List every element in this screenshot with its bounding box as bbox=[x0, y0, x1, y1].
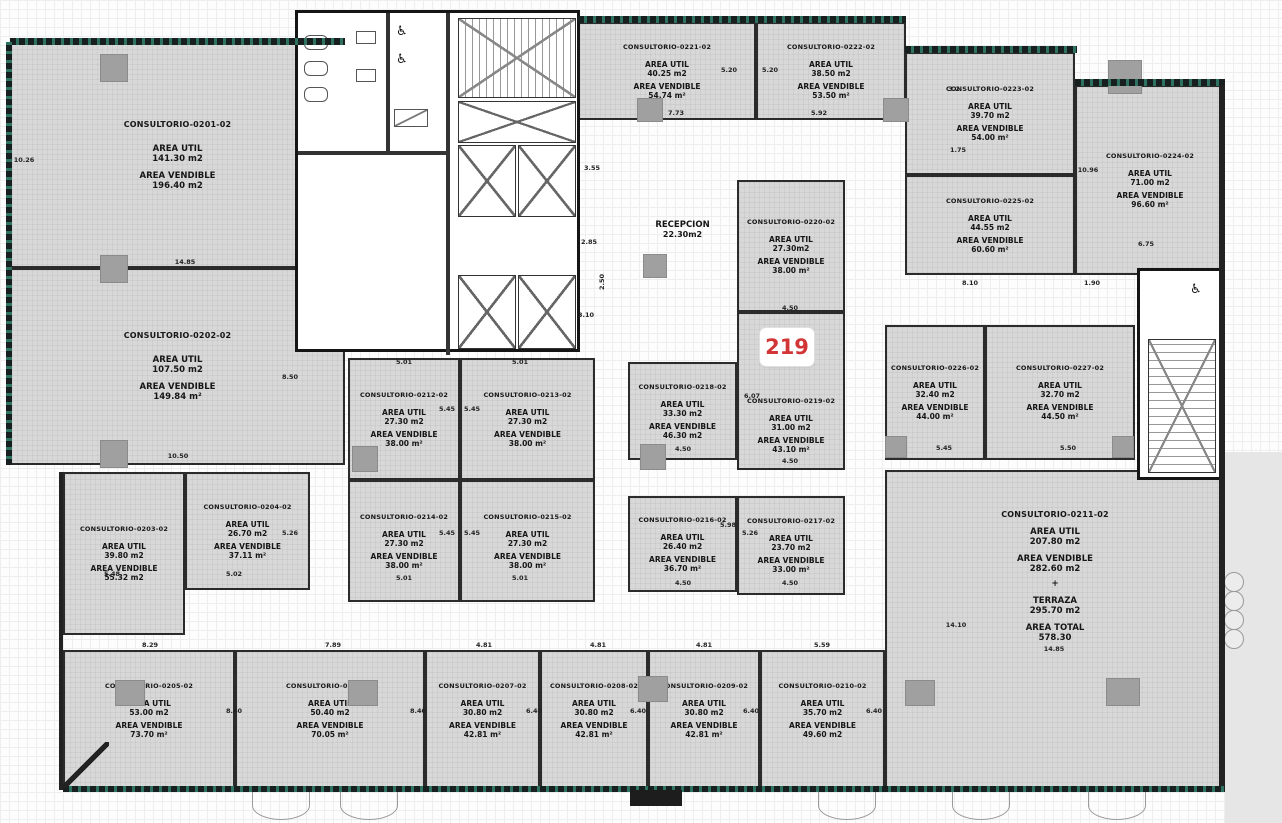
door-swing-arc bbox=[252, 791, 310, 820]
area-vendible-label: AREA VENDIBLE bbox=[371, 430, 438, 439]
area-util-label: AREA UTIL bbox=[1038, 381, 1082, 390]
core-wall bbox=[446, 13, 450, 355]
area-util-value: 26.70 m2 bbox=[228, 529, 267, 538]
dimension-label: 8.10 bbox=[962, 279, 978, 287]
area-vendible-label: AREA VENDIBLE bbox=[494, 552, 561, 561]
area-vendible-label: AREA VENDIBLE bbox=[140, 382, 216, 392]
area-util-value: 27.30 m2 bbox=[508, 417, 547, 426]
area-util-label: AREA UTIL bbox=[661, 400, 705, 409]
area-util-value: 40.25 m2 bbox=[647, 69, 686, 78]
area-util-label: AREA UTIL bbox=[1128, 169, 1172, 178]
area-vendible-value: 73.70 m² bbox=[130, 730, 167, 739]
dimension-label: 8.40 bbox=[226, 707, 242, 715]
dimension-label: 5.45 bbox=[936, 444, 952, 452]
area-util-label: AREA UTIL bbox=[382, 408, 426, 417]
area-util-label: AREA UTIL bbox=[506, 408, 550, 417]
area-util-value: 32.70 m2 bbox=[1040, 390, 1079, 399]
dimension-label: 2.50 bbox=[598, 274, 606, 290]
dimension-label: 5.01 bbox=[512, 358, 528, 366]
column bbox=[640, 444, 666, 470]
area-util-label: AREA UTIL bbox=[506, 530, 550, 539]
wheelchair-icon: ♿ bbox=[396, 25, 408, 38]
door-swing-arc bbox=[1088, 791, 1146, 820]
column bbox=[100, 440, 128, 468]
area-vendible-value: 38.00 m² bbox=[772, 266, 809, 275]
room-consultorio-0206: CONSULTORIO-0206-02 AREA UTIL 50.40 m2 A… bbox=[235, 650, 425, 790]
area-vendible-value: 42.81 m² bbox=[464, 730, 501, 739]
stair-treads bbox=[1148, 339, 1216, 473]
room-id: CONSULTORIO-0222-02 bbox=[787, 43, 875, 51]
area-vendible-label: AREA VENDIBLE bbox=[449, 721, 516, 730]
room-consultorio-0207: CONSULTORIO-0207-02 AREA UTIL 30.80 m2 A… bbox=[425, 650, 540, 790]
dimension-label: 8.50 bbox=[282, 373, 298, 381]
room-consultorio-0208: CONSULTORIO-0208-02 AREA UTIL 30.80 m2 A… bbox=[540, 650, 648, 790]
room-id: CONSULTORIO-0207-02 bbox=[438, 682, 526, 690]
area-vendible-value: 149.84 m² bbox=[153, 392, 201, 402]
area-util-value: 31.00 m2 bbox=[771, 423, 810, 432]
area-util-value: 33.30 m2 bbox=[663, 409, 702, 418]
area-util-value: 53.00 m2 bbox=[129, 708, 168, 717]
area-util-value: 39.70 m2 bbox=[970, 111, 1009, 120]
area-util-label: AREA UTIL bbox=[102, 542, 146, 551]
dimension-label: 5.01 bbox=[396, 358, 412, 366]
dimension-label: 5.50 bbox=[1060, 444, 1076, 452]
area-util-label: AREA UTIL bbox=[801, 699, 845, 708]
plant-scallop bbox=[1224, 629, 1244, 649]
area-vendible-label: AREA VENDIBLE bbox=[1017, 554, 1093, 564]
building-core: ♿ ♿ bbox=[295, 10, 580, 352]
dimension-label: 5.26 bbox=[282, 529, 298, 537]
area-util-value: 35.70 m2 bbox=[803, 708, 842, 717]
room-id: CONSULTORIO-0226-02 bbox=[891, 364, 979, 372]
reception-area-value: 22.30m2 bbox=[605, 230, 760, 239]
area-util-label: AREA UTIL bbox=[226, 520, 270, 529]
area-vendible-value: 38.00 m² bbox=[509, 439, 546, 448]
exterior-wall bbox=[10, 38, 345, 45]
area-util-label: AREA UTIL bbox=[153, 355, 203, 365]
room-id: CONSULTORIO-0216-02 bbox=[638, 516, 726, 524]
area-vendible-label: AREA VENDIBLE bbox=[140, 171, 216, 181]
area-vendible-value: 42.81 m² bbox=[575, 730, 612, 739]
room-consultorio-0223: CONSULTORIO-0223-02 AREA UTIL 39.70 m2 A… bbox=[905, 52, 1075, 175]
room-id: CONSULTORIO-0220-02 bbox=[747, 218, 835, 226]
exterior-wall bbox=[578, 16, 906, 23]
dimension-label: 4.50 bbox=[675, 445, 691, 453]
area-util-label: AREA UTIL bbox=[913, 381, 957, 390]
dimension-label: 5.45 bbox=[439, 529, 455, 537]
area-util-value: 27.30 m2 bbox=[384, 539, 423, 548]
area-vendible-label: AREA VENDIBLE bbox=[116, 721, 183, 730]
dimension-label: 6.40 bbox=[526, 707, 542, 715]
dimension-label: 14.10 bbox=[946, 621, 967, 629]
area-vendible-value: 36.70 m² bbox=[664, 564, 701, 573]
room-id: CONSULTORIO-0217-02 bbox=[747, 517, 835, 525]
column bbox=[643, 254, 667, 278]
area-vendible-label: AREA VENDIBLE bbox=[91, 564, 158, 573]
area-util-value: 26.40 m2 bbox=[663, 542, 702, 551]
area-util-label: AREA UTIL bbox=[809, 60, 853, 69]
dimension-label: 4.50 bbox=[675, 579, 691, 587]
area-util-value: 23.70 m2 bbox=[771, 543, 810, 552]
dimension-label: 5.98 bbox=[720, 521, 736, 529]
area-vendible-label: AREA VENDIBLE bbox=[902, 403, 969, 412]
dimension-label: 6.07 bbox=[744, 392, 760, 400]
dimension-label: 10.26 bbox=[14, 156, 35, 164]
column bbox=[637, 98, 663, 122]
area-util-value: 71.00 m2 bbox=[1130, 178, 1169, 187]
dimension-label: 1.75 bbox=[950, 146, 966, 154]
area-vendible-value: 43.10 m² bbox=[772, 445, 809, 454]
area-vendible-value: 42.81 m² bbox=[685, 730, 722, 739]
area-vendible-value: 38.00 m² bbox=[509, 561, 546, 570]
plant-scallop bbox=[1224, 591, 1244, 611]
area-vendible-value: 49.60 m2 bbox=[803, 730, 842, 739]
dimension-label: 14.85 bbox=[1044, 645, 1065, 653]
floor-plan: CONSULTORIO-0201-02 AREA UTIL 141.30 m2 … bbox=[0, 0, 1282, 823]
room-consultorio-0214: CONSULTORIO-0214-02 AREA UTIL 27.30 m2 A… bbox=[348, 480, 460, 602]
area-util-label: AREA UTIL bbox=[769, 235, 813, 244]
dimension-label: 3.55 bbox=[584, 164, 600, 172]
dimension-label: 7.89 bbox=[325, 641, 341, 649]
dimension-label: 4.81 bbox=[590, 641, 606, 649]
area-vendible-label: AREA VENDIBLE bbox=[1117, 191, 1184, 200]
area-vendible-label: AREA VENDIBLE bbox=[371, 552, 438, 561]
area-vendible-value: 37.11 m² bbox=[229, 551, 266, 560]
column bbox=[883, 98, 909, 122]
service-box bbox=[394, 109, 428, 127]
column bbox=[115, 680, 145, 706]
area-vendible-label: AREA VENDIBLE bbox=[214, 542, 281, 551]
exterior-wall bbox=[1219, 85, 1225, 790]
dimension-label: 5.20 bbox=[762, 66, 778, 74]
room-id: CONSULTORIO-0209-02 bbox=[660, 682, 748, 690]
room-consultorio-0216: CONSULTORIO-0216-02 AREA UTIL 26.40 m2 A… bbox=[628, 496, 737, 592]
exterior-wall bbox=[6, 42, 12, 465]
area-util-value: 27.30 m2 bbox=[384, 417, 423, 426]
room-consultorio-0210: CONSULTORIO-0210-02 AREA UTIL 35.70 m2 A… bbox=[760, 650, 885, 790]
column bbox=[352, 446, 378, 472]
room-id: CONSULTORIO-0227-02 bbox=[1016, 364, 1104, 372]
dimension-label: 10.50 bbox=[168, 452, 189, 460]
area-vendible-value: 53.50 m² bbox=[812, 91, 849, 100]
entry-vestibule bbox=[630, 790, 682, 806]
area-util-label: AREA UTIL bbox=[461, 699, 505, 708]
dimension-label: 5.01 bbox=[396, 574, 412, 582]
dimension-label: 5.45 bbox=[464, 529, 480, 537]
door-swing-arc bbox=[340, 791, 398, 820]
dimension-label: 6.40 bbox=[743, 707, 759, 715]
room-id: CONSULTORIO-0212-02 bbox=[360, 391, 448, 399]
room-id: CONSULTORIO-0203-02 bbox=[80, 525, 168, 533]
area-vendible-label: AREA VENDIBLE bbox=[957, 236, 1024, 245]
wheelchair-icon: ♿ bbox=[1190, 283, 1202, 296]
plant-scallop bbox=[1224, 610, 1244, 630]
room-id: CONSULTORIO-0202-02 bbox=[124, 331, 232, 340]
area-vendible-value: 44.50 m² bbox=[1041, 412, 1078, 421]
dimension-label: 2.85 bbox=[581, 238, 597, 246]
elevator-shaft bbox=[458, 275, 516, 349]
area-vendible-value: 54.00 m² bbox=[971, 133, 1008, 142]
area-util-label: AREA UTIL bbox=[153, 144, 203, 154]
area-util-label: AREA UTIL bbox=[382, 530, 426, 539]
area-util-value: 44.55 m2 bbox=[970, 223, 1009, 232]
dimension-label: 5.26 bbox=[742, 529, 758, 537]
dimension-label: 4.50 bbox=[782, 457, 798, 465]
area-vendible-label: AREA VENDIBLE bbox=[957, 124, 1024, 133]
room-id: CONSULTORIO-0215-02 bbox=[483, 513, 571, 521]
area-util-label: AREA UTIL bbox=[769, 414, 813, 423]
column bbox=[1108, 60, 1142, 94]
column bbox=[348, 680, 378, 706]
area-vendible-label: AREA VENDIBLE bbox=[649, 555, 716, 564]
wheelchair-icon: ♿ bbox=[396, 53, 408, 66]
area-vendible-label: AREA VENDIBLE bbox=[494, 430, 561, 439]
room-id: CONSULTORIO-0219-02 bbox=[747, 397, 835, 405]
dimension-label: 5.45 bbox=[439, 405, 455, 413]
sink-fixture bbox=[356, 69, 376, 82]
room-id: CONSULTORIO-0218-02 bbox=[638, 383, 726, 391]
toilet-fixture bbox=[304, 87, 328, 102]
dimension-label: 4.81 bbox=[476, 641, 492, 649]
room-consultorio-0213: CONSULTORIO-0213-02 AREA UTIL 27.30 m2 A… bbox=[460, 358, 595, 480]
area-total-label: AREA TOTAL bbox=[1026, 623, 1085, 633]
area-util-value: 207.80 m2 bbox=[1030, 537, 1081, 547]
core-wall bbox=[386, 13, 390, 153]
dimension-label: 10.96 bbox=[1078, 166, 1099, 174]
room-id: CONSULTORIO-0210-02 bbox=[778, 682, 866, 690]
dimension-label: 3.2 bbox=[948, 85, 960, 93]
area-vendible-label: AREA VENDIBLE bbox=[561, 721, 628, 730]
column bbox=[100, 255, 128, 283]
area-vendible-value: 46.30 m2 bbox=[663, 431, 702, 440]
area-util-value: 27.30 m2 bbox=[508, 539, 547, 548]
area-vendible-value: 33.00 m² bbox=[772, 565, 809, 574]
room-consultorio-0203: CONSULTORIO-0203-02 AREA UTIL 39.80 m2 A… bbox=[63, 472, 185, 635]
room-id: CONSULTORIO-0201-02 bbox=[124, 120, 232, 129]
dimension-label: 7.73 bbox=[668, 109, 684, 117]
dimension-label: 4.50 bbox=[782, 579, 798, 587]
area-vendible-label: AREA VENDIBLE bbox=[798, 82, 865, 91]
emergency-stair: ♿ bbox=[1137, 268, 1225, 480]
dimension-label: 5.92 bbox=[811, 109, 827, 117]
area-util-value: 30.80 m2 bbox=[463, 708, 502, 717]
area-vendible-value: 60.60 m² bbox=[971, 245, 1008, 254]
door-swing-arc bbox=[952, 791, 1010, 820]
terraza-label: TERRAZA bbox=[1033, 596, 1077, 606]
dimension-label: 4.81 bbox=[696, 641, 712, 649]
dimension-label: 5.01 bbox=[512, 574, 528, 582]
area-vendible-value: 196.40 m2 bbox=[152, 181, 203, 191]
room-consultorio-0211: CONSULTORIO-0211-02 AREA UTIL 207.80 m2 … bbox=[885, 470, 1225, 790]
area-util-label: AREA UTIL bbox=[769, 534, 813, 543]
dimension-label: 4.50 bbox=[782, 304, 798, 312]
area-vendible-label: AREA VENDIBLE bbox=[758, 257, 825, 266]
terraza-value: 295.70 m2 bbox=[1030, 606, 1081, 616]
area-util-value: 107.50 m2 bbox=[152, 365, 203, 375]
dimension-label: 8.29 bbox=[142, 641, 158, 649]
toilet-fixture bbox=[304, 61, 328, 76]
area-vendible-value: 96.60 m² bbox=[1131, 200, 1168, 209]
plus-sign: + bbox=[1051, 579, 1058, 589]
area-vendible-value: 44.00 m² bbox=[916, 412, 953, 421]
column bbox=[885, 436, 907, 458]
dimension-label: 5.02 bbox=[226, 570, 242, 578]
room-id: CONSULTORIO-0214-02 bbox=[360, 513, 448, 521]
area-util-value: 39.80 m2 bbox=[104, 551, 143, 560]
unit-219-marker[interactable]: 219 bbox=[760, 328, 814, 366]
area-util-value: 50.40 m2 bbox=[310, 708, 349, 717]
area-util-label: AREA UTIL bbox=[968, 102, 1012, 111]
dimension-label: 6.40 bbox=[630, 707, 646, 715]
shaft-box bbox=[458, 101, 576, 143]
room-id: CONSULTORIO-0221-02 bbox=[623, 43, 711, 51]
dimension-label: 5.59 bbox=[814, 641, 830, 649]
area-util-label: AREA UTIL bbox=[572, 699, 616, 708]
area-util-value: 32.40 m2 bbox=[915, 390, 954, 399]
area-util-value: 38.50 m2 bbox=[811, 69, 850, 78]
area-util-label: AREA UTIL bbox=[661, 533, 705, 542]
exterior-wall bbox=[905, 46, 1077, 53]
dimension-label: 14.85 bbox=[175, 258, 196, 266]
area-vendible-label: AREA VENDIBLE bbox=[649, 422, 716, 431]
column bbox=[1106, 678, 1140, 706]
dimension-label: 5.45 bbox=[464, 405, 480, 413]
elevator-shaft bbox=[518, 275, 576, 349]
area-vendible-value: 282.60 m2 bbox=[1030, 564, 1081, 574]
column bbox=[100, 54, 128, 82]
reception-label: RECEPCION bbox=[605, 220, 760, 230]
room-id: CONSULTORIO-0213-02 bbox=[483, 391, 571, 399]
area-vendible-value: 38.00 m² bbox=[385, 561, 422, 570]
area-util-label: AREA UTIL bbox=[1030, 527, 1080, 537]
plant-scallop bbox=[1224, 572, 1244, 592]
sink-fixture bbox=[356, 31, 376, 44]
room-id: CONSULTORIO-0204-02 bbox=[203, 503, 291, 511]
room-consultorio-0220: CONSULTORIO-0220-02 AREA UTIL 27.30m2 AR… bbox=[737, 180, 845, 312]
area-vendible-label: AREA VENDIBLE bbox=[1027, 403, 1094, 412]
room-id: CONSULTORIO-0224-02 bbox=[1106, 152, 1194, 160]
area-util-label: AREA UTIL bbox=[968, 214, 1012, 223]
room-consultorio-0215: CONSULTORIO-0215-02 AREA UTIL 27.30 m2 A… bbox=[460, 480, 595, 602]
elevator-shaft bbox=[458, 145, 516, 217]
area-vendible-label: AREA VENDIBLE bbox=[789, 721, 856, 730]
column bbox=[1112, 436, 1134, 458]
core-stairs bbox=[458, 18, 576, 98]
room-id: CONSULTORIO-0225-02 bbox=[946, 197, 1034, 205]
area-util-label: AREA UTIL bbox=[308, 699, 352, 708]
exterior-wall bbox=[1075, 79, 1225, 86]
area-util-label: AREA UTIL bbox=[645, 60, 689, 69]
area-util-value: 27.30m2 bbox=[773, 244, 810, 253]
room-consultorio-0225: CONSULTORIO-0225-02 AREA UTIL 44.55 m2 A… bbox=[905, 175, 1075, 275]
reception-area: RECEPCION 22.30m2 bbox=[605, 220, 760, 239]
area-vendible-label: AREA VENDIBLE bbox=[671, 721, 738, 730]
dimension-label: 6.75 bbox=[1138, 240, 1154, 248]
door-swing-arc bbox=[818, 791, 876, 820]
area-util-value: 30.80 m2 bbox=[684, 708, 723, 717]
corner-diagonal-wall bbox=[63, 742, 109, 788]
dimension-label: 8.40 bbox=[410, 707, 426, 715]
room-id: CONSULTORIO-0208-02 bbox=[550, 682, 638, 690]
area-vendible-label: AREA VENDIBLE bbox=[758, 556, 825, 565]
room-id: CONSULTORIO-0211-02 bbox=[1001, 510, 1109, 519]
dimension-label: 3.10 bbox=[578, 311, 594, 319]
area-total-value: 578.30 bbox=[1039, 633, 1072, 643]
area-vendible-label: AREA VENDIBLE bbox=[634, 82, 701, 91]
dimension-label: 1.90 bbox=[1084, 279, 1100, 287]
column bbox=[905, 680, 935, 706]
area-util-label: AREA UTIL bbox=[682, 699, 726, 708]
elevator-shaft bbox=[518, 145, 576, 217]
area-vendible-label: AREA VENDIBLE bbox=[758, 436, 825, 445]
column bbox=[638, 676, 668, 702]
dimension-label: 6.40 bbox=[866, 707, 882, 715]
core-wall bbox=[298, 151, 448, 155]
room-consultorio-0209: CONSULTORIO-0209-02 AREA UTIL 30.80 m2 A… bbox=[648, 650, 760, 790]
area-vendible-value: 38.00 m² bbox=[385, 439, 422, 448]
dimension-label: 5.20 bbox=[721, 66, 737, 74]
dimension-label: 5.48 bbox=[104, 570, 120, 578]
area-util-value: 30.80 m2 bbox=[574, 708, 613, 717]
area-vendible-label: AREA VENDIBLE bbox=[297, 721, 364, 730]
area-vendible-value: 70.05 m² bbox=[311, 730, 348, 739]
area-util-value: 141.30 m2 bbox=[152, 154, 203, 164]
